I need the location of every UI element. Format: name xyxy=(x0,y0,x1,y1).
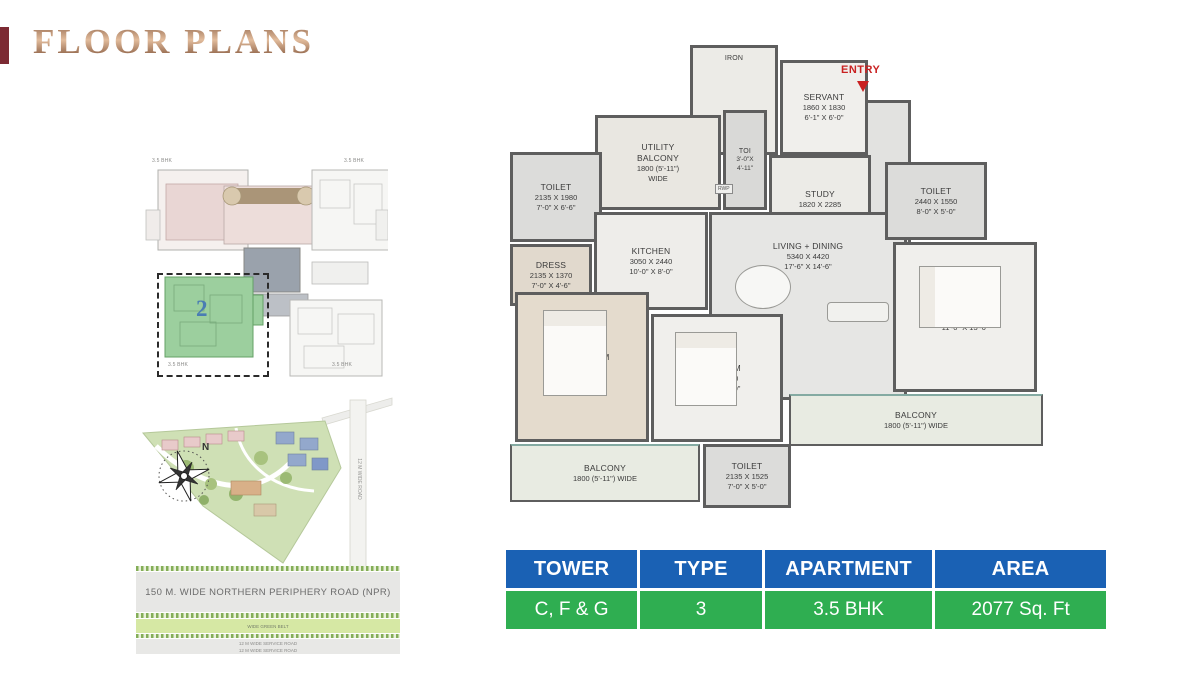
bed-icon xyxy=(675,332,737,406)
room-label: BALCONY xyxy=(584,463,626,474)
dining-table-icon xyxy=(735,265,791,309)
room-label: 1820 X 2285 xyxy=(799,200,842,210)
room-label: 1800 (5'-11") xyxy=(637,164,679,174)
key-plan-unit-number: 2 xyxy=(196,296,208,322)
spec-header-tower: TOWER xyxy=(506,550,637,588)
room-label: KITCHEN xyxy=(632,246,671,257)
room-label: 2440 X 1550 xyxy=(915,197,958,207)
entry-label: ENTRY xyxy=(841,64,880,76)
room-label: STUDY xyxy=(805,189,835,200)
room-label: 2135 X 1370 xyxy=(530,271,573,281)
room-label: IRON xyxy=(725,54,743,63)
room-toilet-bottom: TOILET2135 X 15257'-0" X 5'-0" xyxy=(703,444,791,508)
service-road-label: 12 M WIDE SERVICE ROAD xyxy=(239,640,297,647)
key-plan-corner-label: 3.5 BHK xyxy=(332,362,352,368)
room-label: TOI xyxy=(739,147,751,156)
hedge-row xyxy=(136,566,400,571)
room-label: 17'-6" X 14'-6" xyxy=(784,262,831,272)
room-utility-balcony: UTILITY BALCONY1800 (5'-11")WIDE xyxy=(595,115,721,210)
room-label: 7'-0" X 6'-6" xyxy=(536,203,575,213)
spec-table: TOWER TYPE APARTMENT AREA C, F & G 3 3.5… xyxy=(506,550,1106,629)
floor-plans-slide: FLOOR PLANS xyxy=(0,0,1200,675)
hedge-row xyxy=(136,613,400,618)
main-floor-plan: IRONSERVANT1860 X 18306'-1" X 6'-0"TOI3'… xyxy=(495,40,1075,545)
green-belt-strip: WIDE GREEN BELT xyxy=(136,619,400,633)
room-toilet-tl: TOILET2135 X 19807'-0" X 6'-6" xyxy=(510,152,602,242)
room-label: 3050 X 2440 xyxy=(630,257,673,267)
spec-table-header-row: TOWER TYPE APARTMENT AREA xyxy=(506,550,1106,588)
room-label: 6'-1" X 6'-0" xyxy=(804,113,843,123)
spec-header-type: TYPE xyxy=(640,550,762,588)
page-title: FLOOR PLANS xyxy=(33,22,314,62)
room-label: BALCONY xyxy=(895,410,937,421)
room-label: 1860 X 1830 xyxy=(803,103,846,113)
spec-value-apartment: 3.5 BHK xyxy=(765,591,932,629)
spec-header-apartment: APARTMENT xyxy=(765,550,932,588)
side-road-label: 12 M WIDE ROAD xyxy=(356,458,362,500)
room-label: 8'-0" X 5'-0" xyxy=(916,207,955,217)
hedge-row xyxy=(136,634,400,638)
key-plan-corner-label: 3.5 BHK xyxy=(152,158,172,164)
compass-north-label: N xyxy=(202,442,209,453)
room-label: TOILET xyxy=(541,182,572,193)
spec-value-area: 2077 Sq. Ft xyxy=(935,591,1106,629)
npr-road-strip: 150 M. WIDE NORTHERN PERIPHERY ROAD (NPR… xyxy=(136,572,400,612)
room-toilet-tr: TOILET2440 X 15508'-0" X 5'-0" xyxy=(885,162,987,240)
room-balcony-bottom: BALCONY1800 (5'-11") WIDE xyxy=(510,444,700,502)
room-label: 7'-0" X 4'-6" xyxy=(531,281,570,291)
spec-header-area: AREA xyxy=(935,550,1106,588)
spec-value-type: 3 xyxy=(640,591,762,629)
accent-bar xyxy=(0,27,9,64)
room-balcony-right: BALCONY1800 (5'-11") WIDE xyxy=(789,394,1043,446)
room-label: LIVING + DINING xyxy=(773,241,843,252)
spec-value-tower: C, F & G xyxy=(506,591,637,629)
rwp-label: RWP xyxy=(715,184,733,194)
spec-table-value-row: C, F & G 3 3.5 BHK 2077 Sq. Ft xyxy=(506,591,1106,629)
green-belt-label: WIDE GREEN BELT xyxy=(247,624,288,629)
room-label: 7'-0" X 5'-0" xyxy=(727,482,766,492)
room-label: UTILITY BALCONY xyxy=(627,142,689,164)
room-toi: TOI3'-0"X4'-11" xyxy=(723,110,767,210)
room-label: SERVANT xyxy=(804,92,845,103)
room-label: WIDE xyxy=(648,174,668,184)
service-road-label: 12 M WIDE SERVICE ROAD xyxy=(239,647,297,654)
room-label: 3'-0"X xyxy=(736,156,753,164)
key-plan-corner-label: 3.5 BHK xyxy=(168,362,188,368)
sofa-icon xyxy=(827,302,889,322)
room-label: 10'-0" X 8'-0" xyxy=(629,267,672,277)
room-label: 1800 (5'-11") WIDE xyxy=(884,421,948,431)
service-road-strip: 12 M WIDE SERVICE ROAD 12 M WIDE SERVICE… xyxy=(136,639,400,654)
bed-icon xyxy=(543,310,607,396)
site-plan: 12 M WIDE ROAD xyxy=(136,396,400,658)
room-label: 2135 X 1525 xyxy=(726,472,769,482)
room-label: TOILET xyxy=(921,186,952,197)
room-label: TOILET xyxy=(732,461,763,472)
npr-road-label: 150 M. WIDE NORTHERN PERIPHERY ROAD (NPR… xyxy=(145,587,391,598)
key-plan-corner-label: 3.5 BHK xyxy=(344,158,364,164)
room-label: 2135 X 1980 xyxy=(535,193,578,203)
room-label: 1800 (5'-11") WIDE xyxy=(573,474,637,484)
room-label: 4'-11" xyxy=(737,165,753,173)
room-label: DRESS xyxy=(536,260,566,271)
entry-arrow-icon xyxy=(857,81,869,92)
room-label: 5340 X 4420 xyxy=(787,252,830,262)
key-plan: 2 3.5 BHK 3.5 BHK 3.5 BHK 3.5 BHK xyxy=(140,150,388,382)
bed-icon xyxy=(919,266,1001,328)
